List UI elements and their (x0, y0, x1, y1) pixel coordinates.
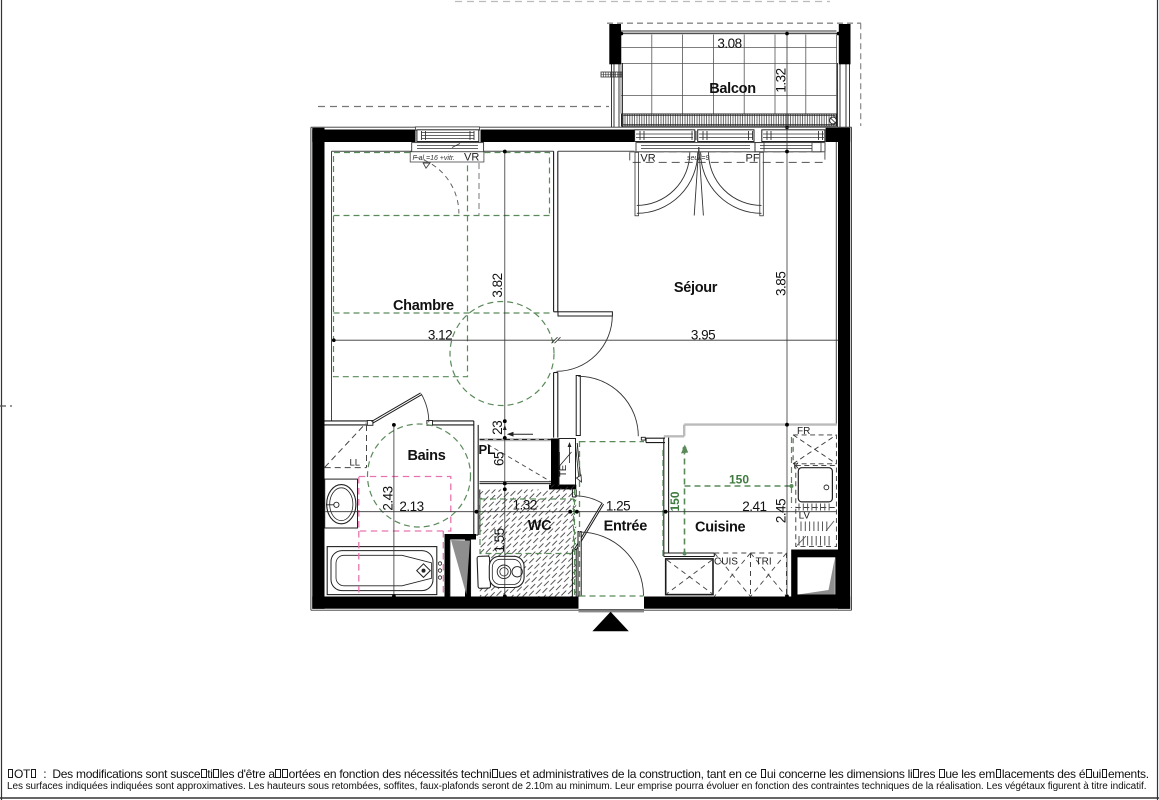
svg-text:65: 65 (492, 452, 507, 466)
svg-text:3.08: 3.08 (717, 36, 741, 51)
svg-text:2.45: 2.45 (773, 499, 788, 523)
svg-text:Balcon: Balcon (709, 81, 756, 97)
svg-text:3.12: 3.12 (428, 328, 452, 343)
svg-text:FR: FR (797, 426, 810, 437)
svg-text:150: 150 (729, 473, 749, 487)
svg-text:PF: PF (746, 153, 760, 165)
svg-text:1.25: 1.25 (606, 499, 630, 514)
svg-text:TRI: TRI (756, 557, 772, 568)
svg-text:3.95: 3.95 (691, 328, 715, 343)
svg-text:Chambre: Chambre (393, 298, 454, 314)
svg-text:3.82: 3.82 (490, 273, 505, 297)
svg-text:2.41: 2.41 (742, 499, 766, 514)
svg-text:1.32: 1.32 (513, 498, 537, 513)
svg-text:23: 23 (490, 421, 505, 435)
svg-text:VR: VR (640, 153, 655, 165)
svg-text:1.32: 1.32 (774, 68, 789, 92)
svg-text:Séjour: Séjour (674, 280, 718, 296)
svg-text:LV: LV (799, 511, 811, 522)
svg-text:2.13: 2.13 (399, 499, 423, 514)
svg-text:Entrée: Entrée (604, 518, 648, 534)
svg-text:WC: WC (528, 518, 552, 534)
svg-text:3.85: 3.85 (774, 272, 789, 296)
svg-text:LL: LL (350, 458, 361, 469)
svg-text:Bains: Bains (408, 448, 446, 464)
svg-text:2.43: 2.43 (381, 486, 396, 510)
svg-text:TE: TE (558, 465, 569, 477)
svg-text:150: 150 (668, 491, 682, 511)
svg-text:Cuisine: Cuisine (695, 520, 746, 536)
svg-text:VR: VR (464, 152, 479, 164)
svg-text:CUIS: CUIS (714, 557, 738, 568)
svg-text:1.55: 1.55 (492, 528, 507, 552)
